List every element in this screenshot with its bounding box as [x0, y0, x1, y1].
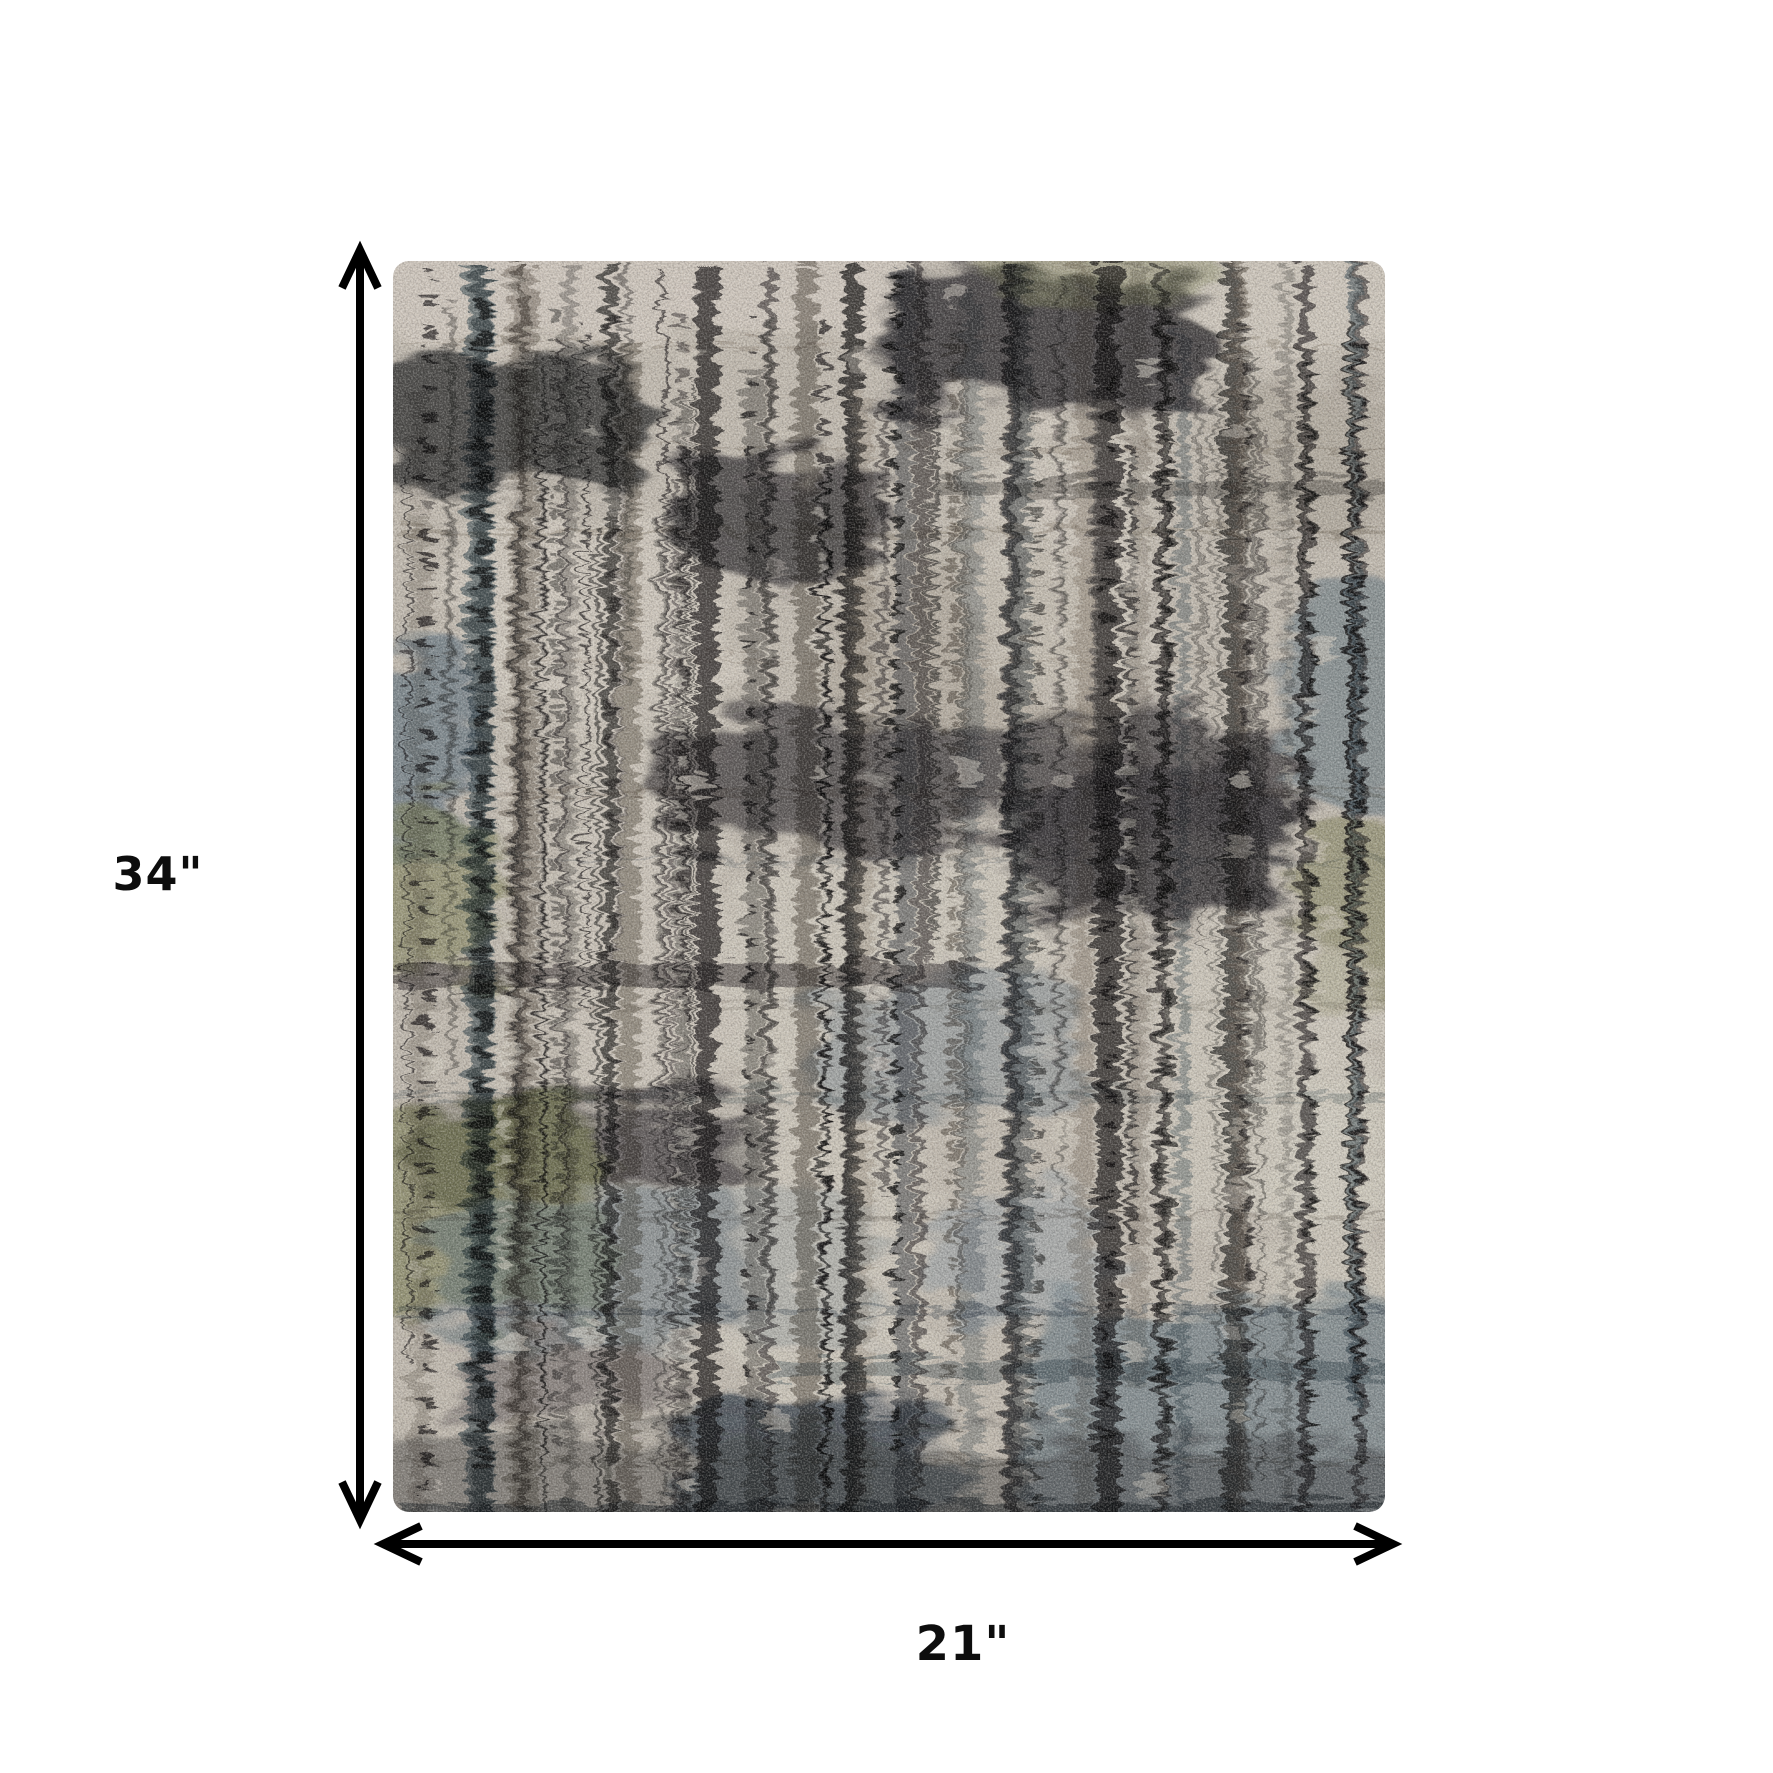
height-dimension-label: 34": [93, 851, 223, 897]
width-dimension-label: 21": [898, 1620, 1028, 1668]
product-dimension-image: 34" 21": [0, 0, 1773, 1773]
width-dimension-arrow: [374, 1515, 1402, 1573]
rug-texture: [390, 258, 1388, 1515]
rug-photo: [390, 258, 1388, 1515]
height-dimension-arrow: [329, 238, 391, 1530]
